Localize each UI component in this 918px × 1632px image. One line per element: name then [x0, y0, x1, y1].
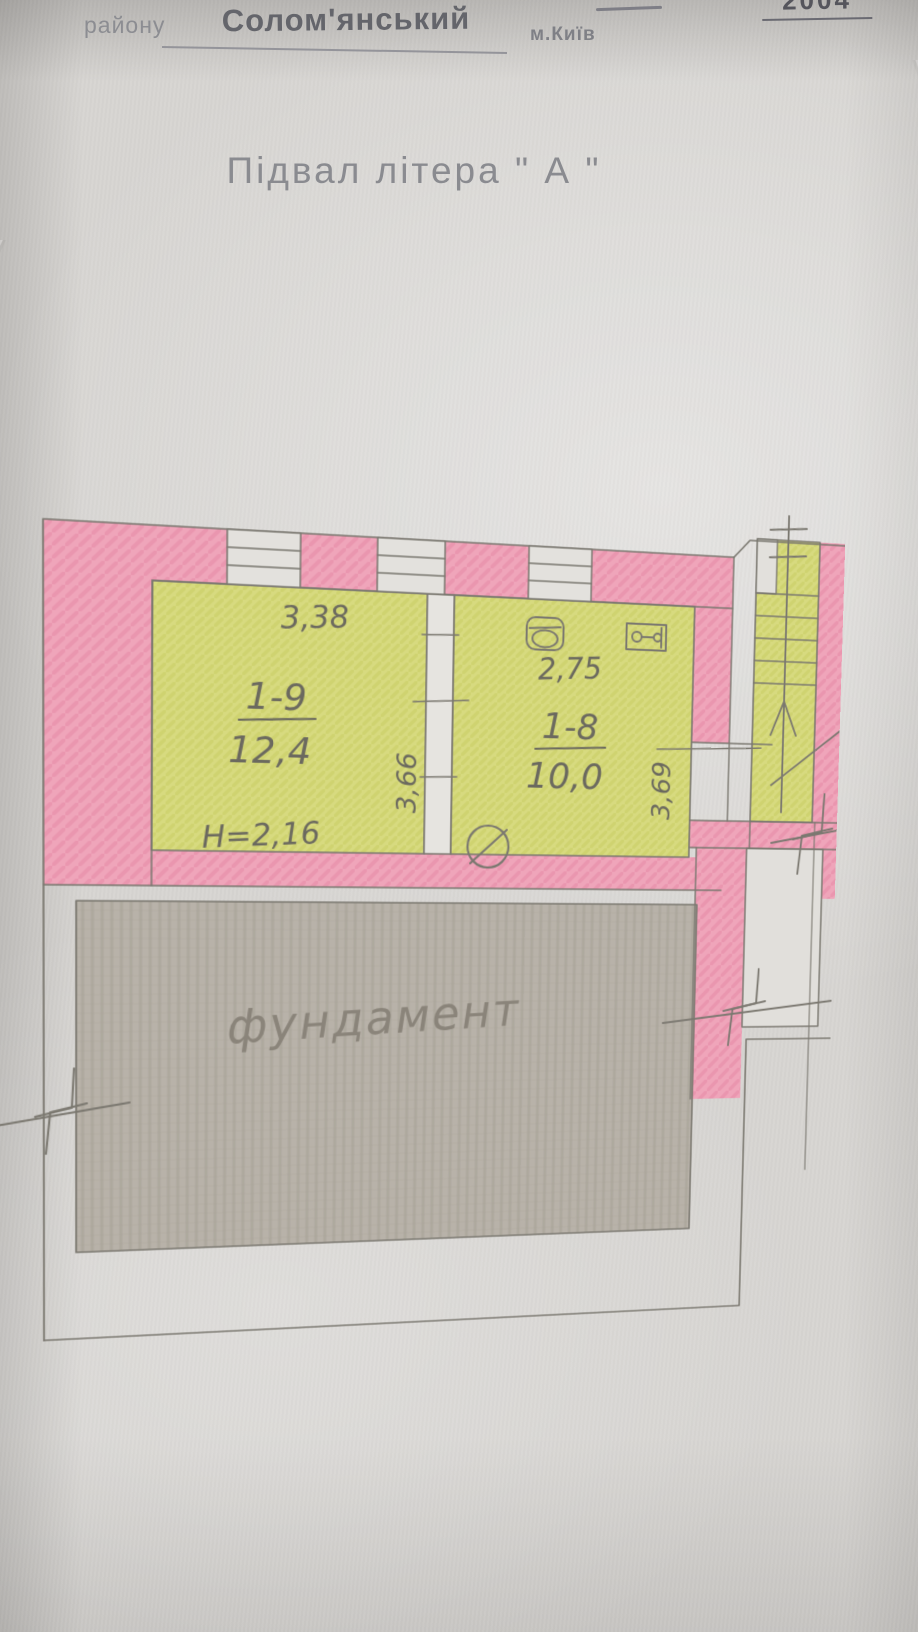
page-title: Підвал літера " А " — [0, 150, 828, 192]
district-underline — [162, 46, 507, 54]
room-1-8-width-dim: 2,75 — [537, 651, 602, 687]
room-1-9-width-dim: 3,38 — [280, 599, 350, 636]
window-icon — [227, 529, 301, 587]
window-icon — [377, 537, 445, 594]
wall-right-of-room-1-8 — [692, 607, 733, 744]
floor-plan-wrap: фундамент — [0, 451, 846, 1351]
room-1-9-area: 12,4 — [228, 728, 311, 773]
year-fragment: 2004 — [762, 0, 873, 21]
photo-of-document: 2004 району Солом'янський м.Київ Підвал … — [0, 0, 918, 1632]
window-icon — [528, 546, 592, 602]
room-1-9-depth-dim: 3,66 — [390, 752, 423, 814]
city-label: м.Київ — [530, 24, 596, 46]
foundation-area — [76, 901, 697, 1253]
room-1-9-height-note: H=2,16 — [201, 815, 321, 855]
left-wall — [43, 519, 152, 886]
floor-plan: фундамент — [0, 451, 846, 1351]
room-1-8-id: 1-8 — [542, 705, 599, 748]
district-value-handwritten: Солом'янський — [196, 0, 496, 39]
room-1-8-depth-dim: 3,69 — [646, 761, 677, 820]
cutoff-underline — [596, 6, 662, 11]
district-label: району — [84, 12, 165, 39]
partition-wall — [424, 594, 454, 854]
room-1-9-id: 1-9 — [246, 674, 307, 719]
room-1-8-area: 10,0 — [526, 754, 604, 797]
wall-left-of-lower-room — [690, 848, 746, 1099]
stair-landing — [756, 539, 778, 594]
